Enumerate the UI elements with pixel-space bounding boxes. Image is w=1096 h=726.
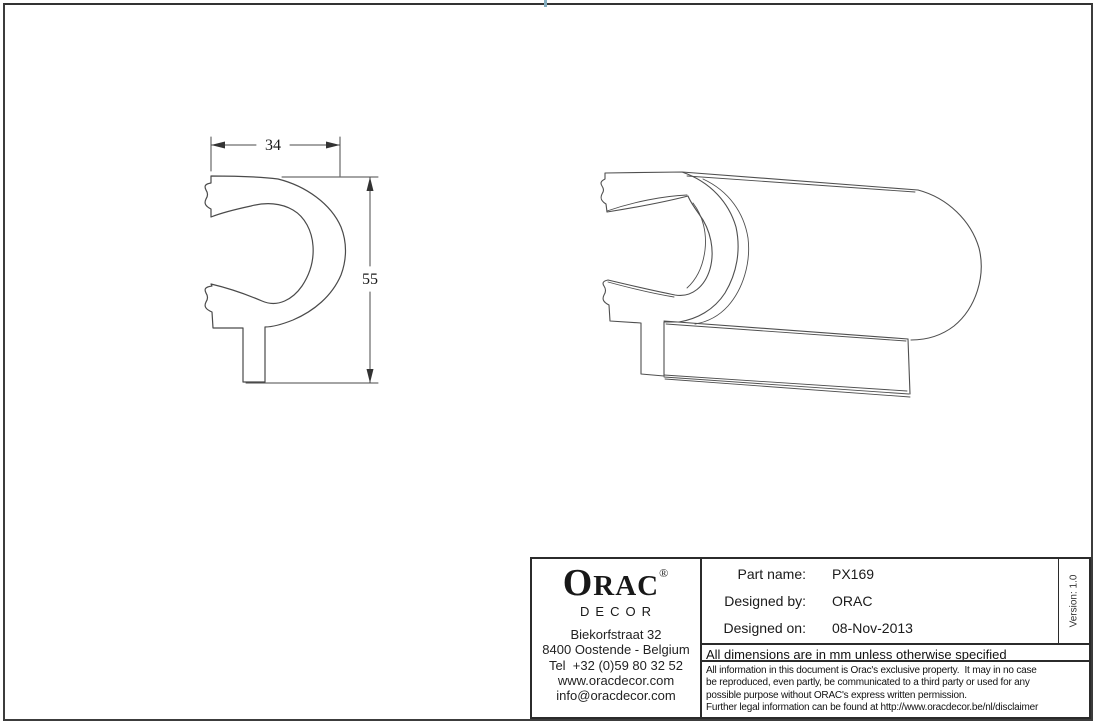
- cavity-lower-lens: [608, 282, 674, 297]
- field-designed-on: Designed on: 08-Nov-2013: [702, 620, 1089, 640]
- drawing-sheet: 34 55: [0, 0, 1096, 726]
- company-cell: ORAC® DECOR Biekorfstraat 32 8400 Oosten…: [532, 559, 702, 717]
- field-label: Designed by:: [702, 593, 806, 609]
- part-info-cell: Part name: PX169 Designed by: ORAC Desig…: [702, 559, 1089, 645]
- board-bottom-edges: [664, 375, 910, 397]
- dimension-width: 34: [211, 137, 340, 176]
- legal-text-block: All information in this document is Orac…: [702, 664, 1089, 717]
- top-tick-mark: [544, 0, 547, 7]
- dimension-height: 55: [246, 177, 378, 383]
- field-value: ORAC: [832, 593, 872, 609]
- version-label: Version: 1.0: [1069, 575, 1080, 628]
- dim-arrow-top: [367, 177, 374, 191]
- top-sweep-back-edge: [687, 176, 915, 192]
- legal-line: possible purpose without ORAC's express …: [706, 690, 1089, 702]
- logo-rest: RAC: [593, 570, 659, 602]
- rounded-end-cap: [911, 190, 981, 340]
- board-top-back-edge: [666, 324, 906, 341]
- field-label: Part name:: [702, 566, 806, 582]
- legal-line: All information in this document is Orac…: [706, 665, 1089, 677]
- title-block: ORAC® DECOR Biekorfstraat 32 8400 Oosten…: [530, 557, 1091, 719]
- perspective-view: [601, 172, 981, 397]
- field-value: 08-Nov-2013: [832, 620, 913, 636]
- field-value: PX169: [832, 566, 874, 582]
- address-line: Biekorfstraat 32: [532, 627, 700, 642]
- field-part-name: Part name: PX169: [702, 566, 1089, 586]
- dim-width-label: 34: [265, 137, 281, 154]
- address-block: Biekorfstraat 32 8400 Oostende - Belgium…: [532, 627, 700, 703]
- address-line-website: www.oracdecor.com: [532, 673, 700, 688]
- legal-line: be reproduced, even partly, be communica…: [706, 677, 1089, 689]
- version-cell: Version: 1.0: [1058, 559, 1089, 643]
- dim-arrow-left: [211, 142, 225, 149]
- dim-arrow-right: [326, 142, 340, 149]
- outer-sweep-echo: [695, 179, 749, 324]
- logo-wordmark: ORAC®: [532, 564, 700, 602]
- cavity-upper-lens: [607, 195, 687, 211]
- field-designed-by: Designed by: ORAC: [702, 593, 1089, 613]
- field-label: Designed on:: [702, 620, 806, 636]
- address-line: Tel +32 (0)59 80 32 52: [532, 658, 700, 673]
- registered-trademark-icon: ®: [659, 566, 669, 580]
- dimensions-note-bar: All dimensions are in mm unless otherwis…: [702, 647, 1089, 662]
- board-right-edge: [908, 339, 910, 394]
- logo-initial: O: [563, 562, 594, 604]
- legal-line: Further legal information can be found a…: [706, 702, 1089, 714]
- dim-arrow-bottom: [367, 369, 374, 383]
- address-line: 8400 Oostende - Belgium: [532, 642, 700, 657]
- logo-subtitle: DECOR: [532, 605, 700, 618]
- orac-logo: ORAC® DECOR: [532, 564, 700, 618]
- board-top-edge: [664, 321, 908, 339]
- address-line-email: info@oracdecor.com: [532, 688, 700, 703]
- dim-height-label: 55: [362, 271, 378, 288]
- front-view: 34 55: [205, 137, 378, 383]
- perspective-profile-face: [601, 172, 738, 376]
- inner-cavity-echo: [687, 203, 706, 288]
- cross-section-profile: [205, 176, 345, 382]
